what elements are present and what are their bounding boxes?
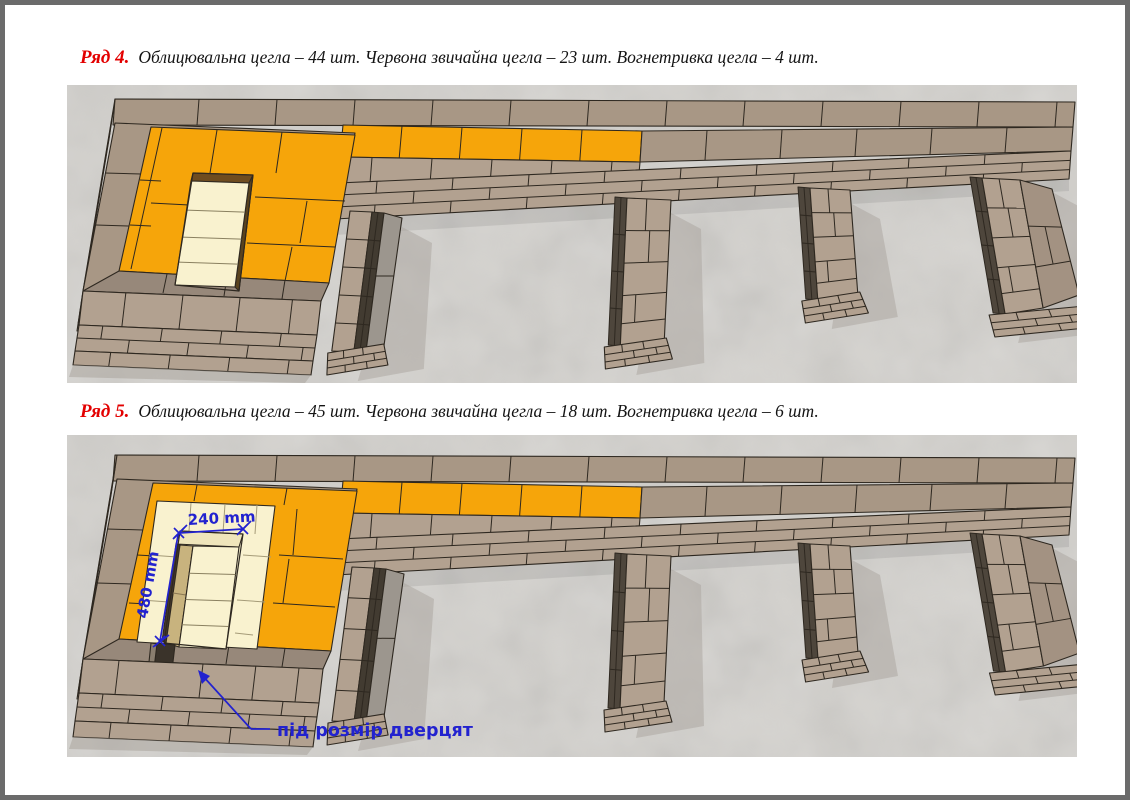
dim-width-label: 240 mm: [187, 507, 256, 529]
row4-heading: Ряд 4.Облицювальна цегла – 44 шт. Червон…: [80, 47, 819, 69]
row5-description: Облицювальна цегла – 45 шт. Червона звич…: [138, 401, 818, 421]
row5-brick-course-figure: 240 mm 480 mm під розмір дверцят: [67, 435, 1077, 757]
document-page: Ряд 4.Облицювальна цегла – 44 шт. Червон…: [0, 0, 1130, 800]
row4-brick-course-figure: [67, 85, 1077, 383]
row5-label: Ряд 5.: [80, 401, 129, 422]
row5-heading: Ряд 5.Облицювальна цегла – 45 шт. Червон…: [80, 401, 819, 423]
row4-description: Облицювальна цегла – 44 шт. Червона звич…: [138, 47, 818, 67]
door-note-label: під розмір дверцят: [277, 721, 474, 741]
row4-label: Ряд 4.: [80, 47, 129, 68]
